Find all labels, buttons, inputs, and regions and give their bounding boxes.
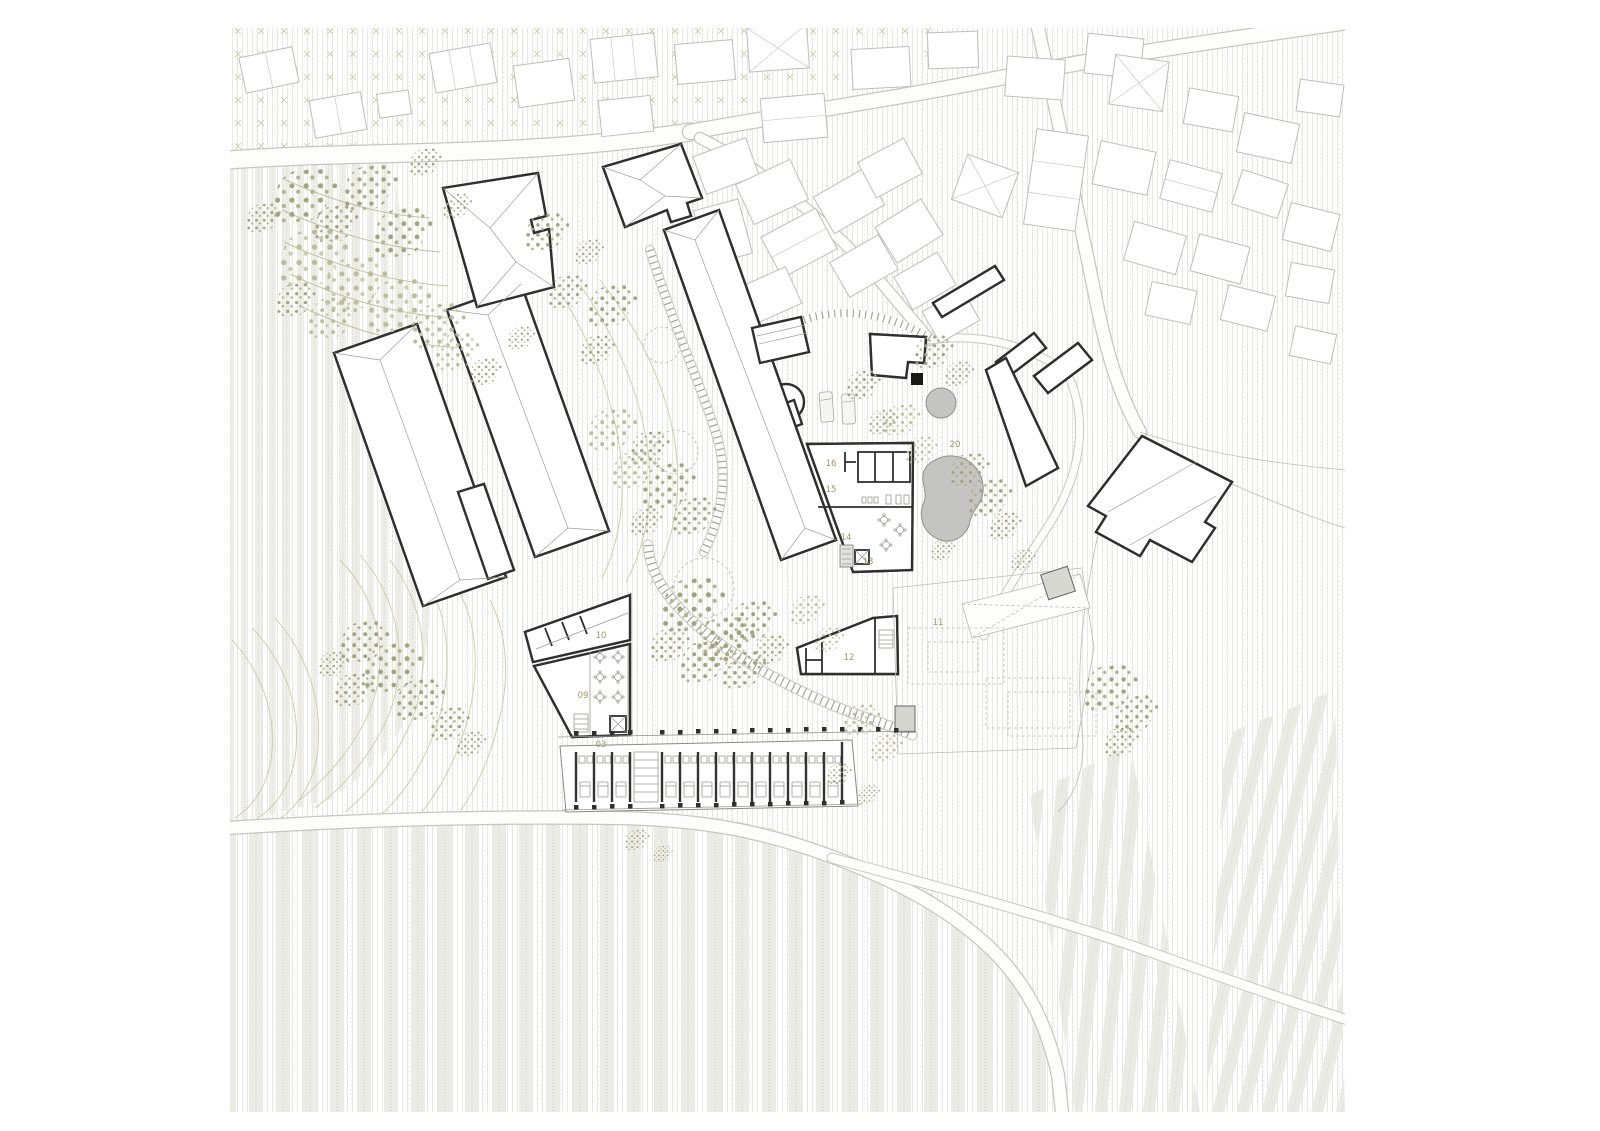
zone-label-15: 15 [826, 485, 837, 495]
zone-label-16: 16 [826, 459, 837, 469]
vineyard-diagonal-east [1205, 690, 1345, 1112]
round-pool [926, 388, 956, 418]
zone-label-10: 10 [596, 631, 607, 641]
masterplan-page: 03 09 10 11 12 13 14 15 16 20 [0, 0, 1600, 1131]
site-plan-drawing: 03 09 10 11 12 13 14 15 16 20 [0, 0, 1600, 1131]
entrance-marker [911, 373, 923, 385]
zone-label-12: 12 [844, 653, 855, 663]
zone-label-14: 14 [841, 533, 852, 543]
zone-label-20: 20 [950, 440, 961, 450]
zone-label-13: 13 [863, 557, 874, 567]
zone-label-11: 11 [933, 618, 944, 628]
zone-label-09: 09 [578, 691, 589, 701]
zone-label-03: 03 [596, 740, 607, 750]
